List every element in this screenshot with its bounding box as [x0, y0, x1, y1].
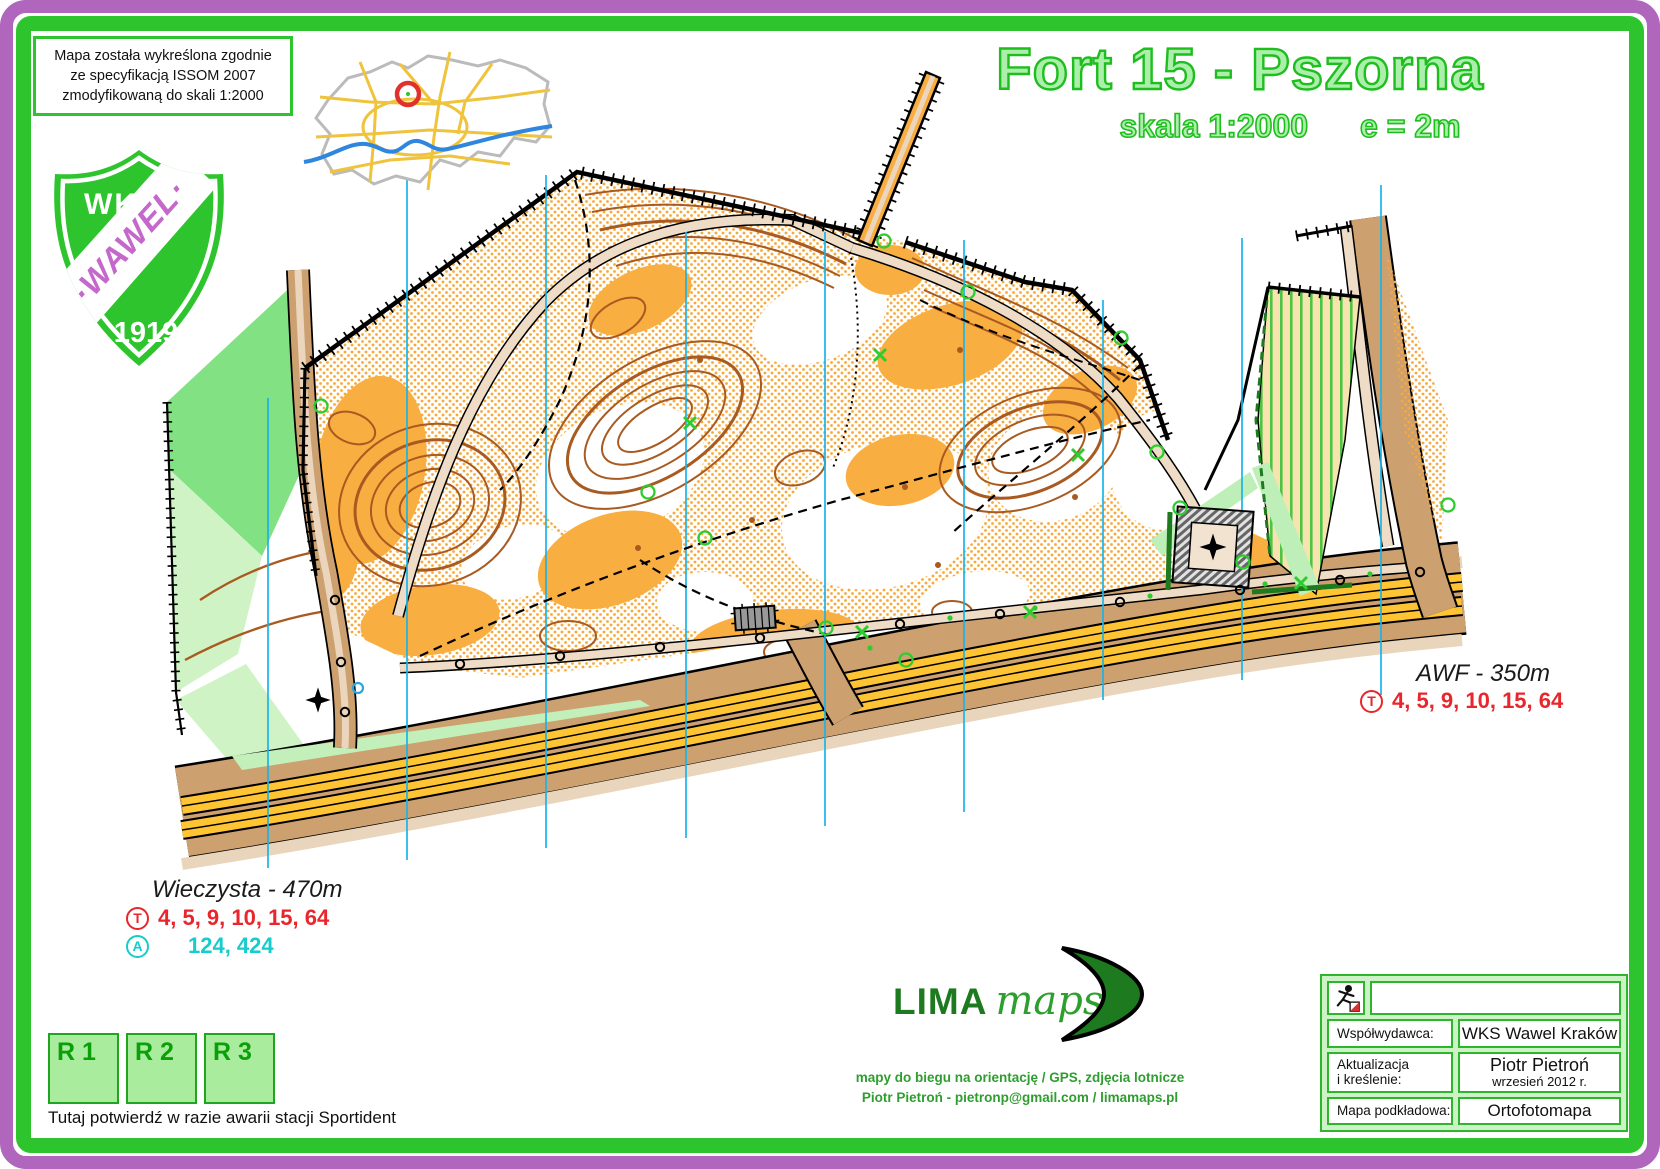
- credits-value: Ortofotomapa: [1458, 1097, 1621, 1125]
- credits-table: Współwydawca: WKS Wawel Kraków Aktualiza…: [1320, 974, 1628, 1132]
- city-boundary: [316, 56, 550, 184]
- map-sheet: Mapa została wykreślona zgodnie ze specy…: [0, 0, 1660, 1169]
- publisher-contact: Piotr Pietroń - pietronp@gmail.com / lim…: [855, 1090, 1185, 1105]
- credits-label: Współwydawca:: [1327, 1019, 1453, 1048]
- tram-line-icon: T: [1360, 690, 1383, 713]
- footbridge-corridor: [858, 72, 940, 246]
- credits-row-author: Aktualizacja i kreślenie: Piotr Pietroń …: [1327, 1052, 1621, 1092]
- wieczysta-tram-lines: T 4, 5, 9, 10, 15, 64: [126, 905, 329, 931]
- equidistance-label: e = 2m: [1360, 108, 1461, 144]
- issom-note-line: zmodyfikowaną do skali 1:2000: [40, 86, 286, 106]
- backup-box-r3: R 3: [204, 1033, 275, 1104]
- credits-label-line: i kreślenie:: [1337, 1072, 1402, 1088]
- crest-year: 1919: [114, 317, 179, 349]
- bus-line-numbers: 124, 424: [188, 933, 274, 959]
- credits-label-line: Aktualizacja: [1337, 1057, 1409, 1073]
- credits-label: Aktualizacja i kreślenie:: [1327, 1052, 1453, 1092]
- tram-line-icon: T: [126, 907, 149, 930]
- page-subtitle: skala 1:2000e = 2m: [1050, 108, 1530, 145]
- wieczysta-bus-lines: A 124, 424: [126, 933, 274, 959]
- bus-line-icon: A: [126, 935, 149, 958]
- location-dot: [406, 92, 410, 96]
- hedge-line: [1168, 512, 1170, 590]
- credits-date: wrzesień 2012 r.: [1492, 1075, 1587, 1090]
- sportident-note: Tutaj potwierdź w razie awarii stacji Sp…: [48, 1108, 396, 1128]
- issom-note-line: Mapa została wykreślona zgodnie: [40, 46, 286, 66]
- backup-box-r1: R 1: [48, 1033, 119, 1104]
- awf-tram-lines: T 4, 5, 9, 10, 15, 64: [1360, 688, 1563, 714]
- stop-name-wieczysta: Wieczysta - 470m: [152, 876, 343, 904]
- publisher-brand: LIMA: [893, 981, 987, 1022]
- control-flag: [1350, 1002, 1359, 1011]
- credits-row-publisher: Współwydawca: WKS Wawel Kraków: [1327, 1019, 1621, 1048]
- monument-icon: [305, 687, 330, 712]
- credits-header-row: [1327, 981, 1621, 1015]
- issom-note-box: Mapa została wykreślona zgodnie ze specy…: [33, 36, 293, 116]
- credits-blank-field: [1370, 981, 1621, 1015]
- backup-box-r2: R 2: [126, 1033, 197, 1104]
- tram-line-numbers: 4, 5, 9, 10, 15, 64: [1392, 688, 1563, 714]
- city-locator-inset: [300, 42, 556, 194]
- credits-label: Mapa podkładowa:: [1327, 1097, 1453, 1125]
- issom-note-line: ze specyfikacją ISSOM 2007: [40, 66, 286, 86]
- sportident-backup-boxes: R 1 R 2 R 3: [48, 1033, 275, 1104]
- credits-value: WKS Wawel Kraków: [1458, 1019, 1621, 1048]
- orienteering-runner-icon: [1327, 981, 1365, 1015]
- lima-swoosh-icon: [1056, 944, 1148, 1044]
- wks-wawel-crest: WKS ·WAWEL· 1919: [44, 146, 234, 372]
- stop-name-awf: AWF - 350m: [1368, 660, 1550, 688]
- credits-row-basemap: Mapa podkładowa: Ortofotomapa: [1327, 1097, 1621, 1125]
- publisher-tagline: mapy do biegu na orientację / GPS, zdjęc…: [855, 1070, 1185, 1085]
- page-title: Fort 15 - Pszorna: [942, 36, 1538, 103]
- credits-value: Piotr Pietroń wrzesień 2012 r.: [1458, 1052, 1621, 1092]
- tram-line-numbers: 4, 5, 9, 10, 15, 64: [158, 905, 329, 931]
- credits-author: Piotr Pietroń: [1490, 1055, 1589, 1076]
- scale-label: skala 1:2000: [1119, 108, 1308, 144]
